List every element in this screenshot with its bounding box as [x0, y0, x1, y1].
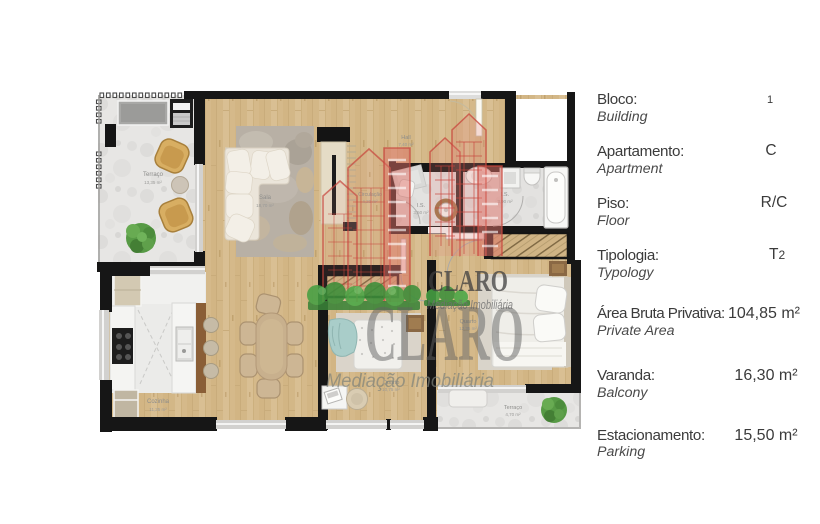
svg-text:Cozinha: Cozinha	[147, 399, 170, 405]
svg-text:Área Bruta Privativa:: Área Bruta Privativa:	[597, 305, 725, 322]
svg-text:T2: T2	[769, 246, 785, 263]
svg-text:Floor: Floor	[597, 213, 631, 229]
svg-text:Balcony: Balcony	[597, 385, 648, 401]
svg-text:Mediação Imobiliária: Mediação Imobiliária	[326, 371, 494, 392]
svg-text:16,30 m²: 16,30 m²	[734, 367, 798, 384]
svg-text:Estacionamento:: Estacionamento:	[597, 427, 705, 444]
svg-text:15,50 m²: 15,50 m²	[734, 427, 798, 444]
svg-text:C: C	[765, 142, 776, 159]
svg-text:18,70 m²: 18,70 m²	[256, 203, 274, 208]
svg-text:Terraço: Terraço	[143, 172, 164, 178]
svg-text:4,70 m²: 4,70 m²	[505, 412, 521, 417]
svg-text:1: 1	[767, 94, 773, 106]
svg-text:13,35 m²: 13,35 m²	[144, 180, 162, 185]
svg-text:Apartamento:: Apartamento:	[597, 143, 684, 160]
svg-text:Apartment: Apartment	[596, 161, 664, 177]
svg-text:R/C: R/C	[761, 194, 788, 211]
svg-text:Tipologia:: Tipologia:	[597, 247, 659, 264]
svg-text:Piso:: Piso:	[597, 195, 629, 212]
svg-text:3,50 m²: 3,50 m²	[413, 210, 429, 215]
svg-text:Typology: Typology	[597, 265, 654, 281]
svg-text:Building: Building	[597, 109, 648, 125]
svg-text:Sala: Sala	[259, 195, 272, 201]
svg-text:Terraço: Terraço	[504, 405, 522, 411]
svg-text:104,85 m²: 104,85 m²	[728, 305, 801, 322]
svg-text:Parking: Parking	[597, 444, 645, 460]
svg-text:CLARO: CLARO	[365, 290, 524, 378]
svg-text:Bloco:: Bloco:	[597, 91, 637, 108]
svg-text:11,25 m²: 11,25 m²	[149, 407, 167, 412]
svg-text:Private Area: Private Area	[597, 323, 675, 339]
svg-text:Hall: Hall	[401, 135, 410, 141]
svg-text:I.S.: I.S.	[417, 203, 426, 209]
svg-text:Varanda:: Varanda:	[597, 367, 655, 384]
svg-text:7,40 m²: 7,40 m²	[398, 142, 414, 147]
